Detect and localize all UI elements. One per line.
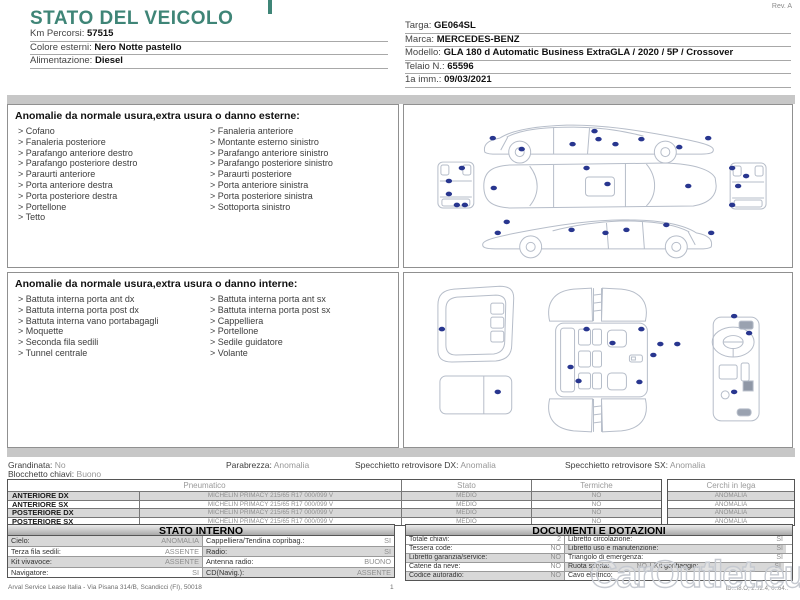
damage-dot (708, 231, 714, 236)
damage-dot (454, 203, 460, 208)
field-label: Blocchetto chiavi: (8, 469, 74, 479)
damage-dot (663, 223, 669, 228)
field-label: Libretto garanzia/service: (406, 554, 516, 562)
list-item: Porta posteriore sinistra (210, 191, 392, 202)
field-value: GE064SL (434, 20, 476, 31)
damage-dot (604, 182, 610, 187)
damage-dot (729, 203, 735, 208)
tyre-position: ANTERIORE DX (8, 491, 139, 500)
list-item: Parafango posteriore sinistro (210, 158, 392, 169)
field-label: Specchietto retrovisore SX: (565, 460, 668, 470)
damage-dot (462, 203, 468, 208)
field-value: SI (128, 568, 202, 578)
damage-dot (459, 166, 465, 171)
field-label: Parabrezza: (226, 460, 272, 470)
exterior-items-left: Cofano Fanaleria posteriore Parafango an… (18, 126, 204, 223)
field-value (710, 572, 786, 580)
field-value: ASSENTE (128, 557, 202, 567)
field-label: Libretto circolazione: (564, 536, 710, 544)
list-item: Portellone (210, 326, 392, 337)
field-label: Tessera code: (406, 545, 516, 553)
damage-dot (595, 137, 601, 142)
field-label: Cielo: (8, 536, 128, 546)
field-value: 57515 (87, 28, 113, 39)
table-row: Libretto garanzia/service:NOTriangolo di… (406, 553, 792, 562)
title-accent-mark (268, 0, 272, 14)
summary-mirror-sx: Specchietto retrovisore SX: Anomalia (565, 460, 705, 470)
separator-band (7, 448, 795, 457)
field-value: NO (516, 554, 564, 562)
field-label: Colore esterni: (30, 42, 92, 53)
exterior-damage-diagram (403, 104, 793, 268)
vehicle-info-left: Km Percorsi: 57515 Colore esterni: Nero … (30, 28, 388, 69)
damage-dot (623, 228, 629, 233)
list-item: Battuta interna porta post sx (210, 305, 392, 316)
revision-label: Rev. A (772, 3, 792, 10)
damage-dot (638, 137, 644, 142)
damage-dot (583, 327, 589, 332)
field-label: Km Percorsi: (30, 28, 84, 39)
tyre-state: MEDIO (401, 491, 531, 500)
field-label: Catene da neve: (406, 563, 516, 571)
field-value: NO (516, 572, 564, 580)
info-row: Telaio N.: 65596 (405, 61, 791, 75)
damage-dot (731, 314, 737, 319)
list-item: Porta posteriore destra (18, 191, 204, 202)
interior-items-left: Battuta interna porta ant dx Battuta int… (18, 294, 204, 359)
list-item: Moquette (18, 326, 204, 337)
summary-mirror-dx: Specchietto retrovisore DX: Anomalia (355, 460, 496, 470)
table-row: Terza fila sedili:ASSENTERadio:SI (8, 546, 394, 557)
table-row: Cielo:ANOMALIACappelliera/Tendina coprib… (8, 536, 394, 546)
summary-windshield: Parabrezza: Anomalia (226, 460, 309, 470)
field-value: Anomalia (460, 460, 495, 470)
car-exterior-diagram-icon (404, 105, 792, 267)
table-row: Kit vivavoce:ASSENTEAntenna radio:BUONO (8, 556, 394, 567)
list-item: Paraurti anteriore (18, 169, 204, 180)
tyre-winter: NO (531, 508, 661, 517)
list-item: Parafango anteriore destro (18, 148, 204, 159)
info-row: Targa: GE064SL (405, 20, 791, 34)
damage-dot (575, 379, 581, 384)
list-item: Fanaleria anteriore (210, 126, 392, 137)
interior-state-table: STATO INTERNO Cielo:ANOMALIACappelliera/… (7, 524, 395, 578)
field-value: 2 (516, 536, 564, 544)
damage-dot (735, 184, 741, 189)
damage-dot (491, 186, 497, 191)
damage-dot (729, 166, 735, 171)
field-value: GLA 180 d Automatic Business ExtraGLA / … (444, 47, 734, 58)
list-item: Parafango anteriore sinistro (210, 148, 392, 159)
list-item: Parafango posteriore destro (18, 158, 204, 169)
info-row: Alimentazione: Diesel (30, 55, 388, 69)
panel-title: Anomalie da normale usura,extra usura o … (8, 105, 398, 125)
field-label: Codice autoradio: (406, 572, 516, 580)
footer-company: Arval Service Lease Italia - Via Pisana … (8, 584, 202, 591)
damage-dot (609, 341, 615, 346)
damage-dot (583, 166, 589, 171)
list-item: Fanaleria posteriore (18, 137, 204, 148)
field-value: SI (742, 563, 784, 571)
field-label: Radio: (202, 547, 322, 557)
list-item: Porta anteriore destra (18, 180, 204, 191)
damage-dot (657, 342, 663, 347)
field-value: Buono (77, 469, 102, 479)
list-item: Tunnel centrale (18, 348, 204, 359)
alloy-wheels-table: Cerchi in lega ANOMALIA ANOMALIA ANOMALI… (667, 479, 795, 526)
field-value: SI (710, 545, 786, 553)
list-item: Cofano (18, 126, 204, 137)
list-item: Paraurti posteriore (210, 169, 392, 180)
tyre-winter: NO (531, 500, 661, 509)
field-value: Anomalia (274, 460, 309, 470)
list-item: Battuta interna porta post dx (18, 305, 204, 316)
damage-dot (650, 353, 656, 358)
list-item: Battuta interna porta ant dx (18, 294, 204, 305)
field-value: SI (710, 554, 786, 562)
damage-dot (638, 327, 644, 332)
field-label: Kit vivavoce: (8, 557, 128, 567)
list-item: Tetto (18, 212, 204, 223)
damage-dot (676, 145, 682, 150)
list-item: Porta anteriore sinistra (210, 180, 392, 191)
table-title: STATO INTERNO (7, 524, 395, 536)
field-value: Anomalia (670, 460, 705, 470)
interior-damage-diagram (403, 272, 793, 448)
list-item: Battuta interna porta ant sx (210, 294, 392, 305)
damage-dot (567, 365, 573, 370)
wheel-state: ANOMALIA (668, 500, 794, 509)
table-row: Catene da neve:NORuota scorta:NOKit gonf… (406, 562, 792, 571)
damage-dot (495, 231, 501, 236)
field-value: ASSENTE (322, 568, 394, 578)
field-label: Libretto uso e manutenzione: (564, 545, 710, 553)
field-label: Cavo elettrico: (564, 572, 710, 580)
field-value: SI (322, 547, 394, 557)
tyre-spec: MICHELIN PRIMACY 215/65 R17 000/099 V (139, 508, 401, 517)
tyre-position: ANTERIORE SX (8, 500, 139, 509)
tyre-spec: MICHELIN PRIMACY 215/65 R17 000/099 V (139, 491, 401, 500)
table-row: Navigatore:SICD(Navig.):ASSENTE (8, 567, 394, 578)
footer-page-number: 1 (390, 584, 394, 591)
exterior-anomalies-panel: Anomalie da normale usura,extra usura o … (7, 104, 399, 268)
damage-dot (602, 231, 608, 236)
field-value: 65596 (447, 61, 473, 72)
field-value: SI (322, 536, 394, 546)
column-header-pneumatico: Pneumatico (8, 480, 401, 491)
damage-dot (685, 184, 691, 189)
summary-key-lock: Blocchetto chiavi: Buono (8, 469, 101, 479)
interior-anomalies-panel: Anomalie da normale usura,extra usura o … (7, 272, 399, 448)
damage-dot (569, 142, 575, 147)
wheel-state: ANOMALIA (668, 508, 794, 517)
field-value: NO (626, 563, 650, 571)
damage-dot (568, 228, 574, 233)
field-label: CD(Navig.): (202, 568, 322, 578)
separator-band (7, 95, 795, 104)
field-label: Targa: (405, 20, 431, 31)
list-item: Seconda fila sedili (18, 337, 204, 348)
car-interior-diagram-icon (404, 273, 792, 447)
damage-dot (743, 174, 749, 179)
list-item: Volante (210, 348, 392, 359)
tyre-position: POSTERIORE DX (8, 508, 139, 517)
field-label: Ruota scorta: (564, 563, 626, 571)
table-title: DOCUMENTI E DOTAZIONI (405, 524, 793, 536)
damage-dot (674, 342, 680, 347)
field-label: Antenna radio: (202, 557, 322, 567)
field-label: 1a imm.: (405, 74, 441, 85)
vehicle-condition-report: STATO DEL VEICOLO Rev. A Km Percorsi: 57… (0, 0, 800, 600)
field-label: Cappelliera/Tendina copribag.: (202, 536, 322, 546)
column-header-cerchi: Cerchi in lega (668, 480, 794, 491)
damage-dot (446, 192, 452, 197)
field-label: Navigatore: (8, 568, 128, 578)
field-label: Kit gonfiaggio: (650, 563, 742, 571)
tyre-winter: NO (531, 491, 661, 500)
damage-dot (591, 129, 597, 134)
field-label: Specchietto retrovisore DX: (355, 460, 458, 470)
field-label: Marca: (405, 34, 434, 45)
table-row: Tessera code:NOLibretto uso e manutenzio… (406, 544, 792, 553)
field-value: SI (710, 536, 786, 544)
field-value: 09/03/2021 (444, 74, 492, 85)
info-row: Km Percorsi: 57515 (30, 28, 388, 42)
field-label: Terza fila sedili: (8, 547, 128, 557)
field-value: MERCEDES-BENZ (437, 34, 520, 45)
field-label: Triangolo di emergenza: (564, 554, 710, 562)
damage-dot (446, 179, 452, 184)
list-item: Battuta interna vano portabagagli (18, 316, 204, 327)
tyre-spec: MICHELIN PRIMACY 215/65 R17 000/099 V (139, 500, 401, 509)
footer-doc-id: ID:..f8.O, 2..f2.4, 0..64.. (726, 586, 788, 592)
interior-items-right: Battuta interna porta ant sx Battuta int… (210, 294, 392, 359)
field-label: Modello: (405, 47, 441, 58)
damage-dot (490, 136, 496, 141)
list-item: Portellone (18, 202, 204, 213)
page-title: STATO DEL VEICOLO (30, 8, 233, 30)
field-label: Alimentazione: (30, 55, 92, 66)
documents-equipment-table: DOCUMENTI E DOTAZIONI Totale chiavi:2Lib… (405, 524, 793, 581)
field-value: ANOMALIA (128, 536, 202, 546)
vehicle-info-right: Targa: GE064SL Marca: MERCEDES-BENZ Mode… (405, 20, 791, 88)
field-label: Totale chiavi: (406, 536, 516, 544)
column-header-termiche: Termiche (531, 480, 661, 491)
field-value: Nero Notte pastello (94, 42, 181, 53)
wheel-state: ANOMALIA (668, 491, 794, 500)
field-value: NO (516, 545, 564, 553)
damage-dot (504, 220, 510, 225)
exterior-items-right: Fanaleria anteriore Montante esterno sin… (210, 126, 392, 212)
field-value: BUONO (322, 557, 394, 567)
damage-dot (495, 390, 501, 395)
info-row: Marca: MERCEDES-BENZ (405, 34, 791, 48)
field-value: Diesel (95, 55, 123, 66)
damage-dot (636, 380, 642, 385)
table-row: Totale chiavi:2Libretto circolazione:SI (406, 536, 792, 544)
damage-dot (612, 142, 618, 147)
info-row: Colore esterni: Nero Notte pastello (30, 42, 388, 56)
column-header-stato: Stato (401, 480, 531, 491)
field-label: Telaio N.: (405, 61, 445, 72)
damage-dot (746, 331, 752, 336)
damage-dot (519, 147, 525, 152)
tyres-table: Pneumatico Stato Termiche ANTERIORE DX M… (7, 479, 662, 526)
list-item: Cappelliera (210, 316, 392, 327)
list-item: Sottoporta sinistro (210, 202, 392, 213)
damage-dot (705, 136, 711, 141)
tyre-state: MEDIO (401, 500, 531, 509)
damage-dot (731, 390, 737, 395)
field-value: ASSENTE (128, 547, 202, 557)
field-value: NO (516, 563, 564, 571)
list-item: Montante esterno sinistro (210, 137, 392, 148)
table-row: Codice autoradio:NOCavo elettrico: (406, 571, 792, 580)
info-row: 1a imm.: 09/03/2021 (405, 74, 791, 88)
panel-title: Anomalie da normale usura,extra usura o … (8, 273, 398, 293)
info-row: Modello: GLA 180 d Automatic Business Ex… (405, 47, 791, 61)
list-item: Sedile guidatore (210, 337, 392, 348)
tyre-state: MEDIO (401, 508, 531, 517)
damage-dot (439, 327, 445, 332)
